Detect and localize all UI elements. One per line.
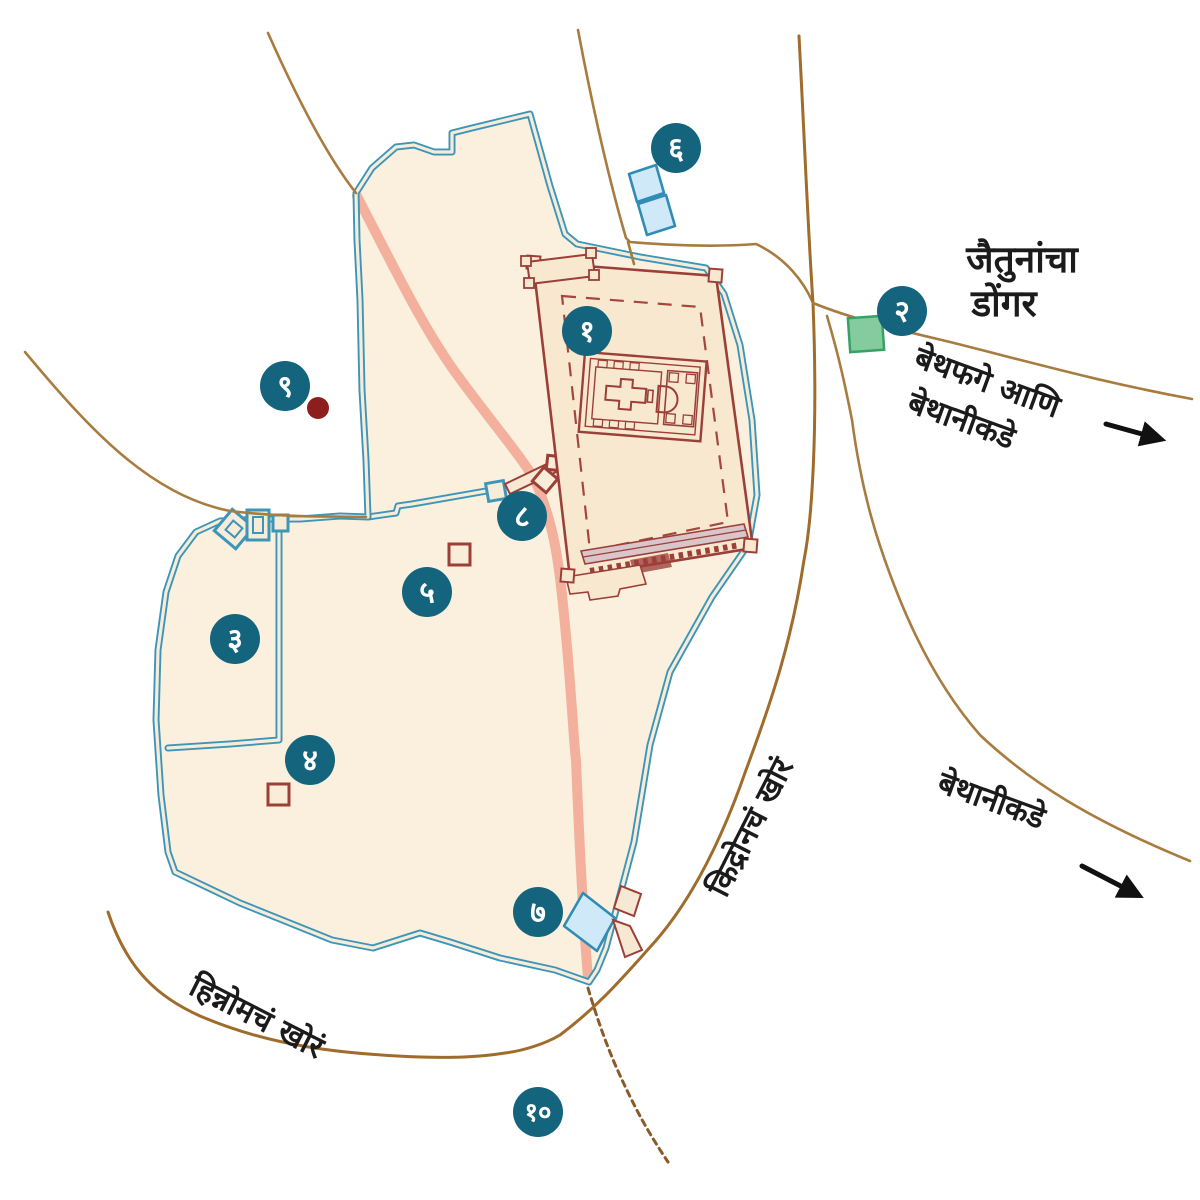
marker-2: २ [877,286,927,336]
map-page: जैतुनांचा डोंगर बेथफगे आणि बेथानीकडे बेथ… [0,0,1200,1200]
mount-of-olives-label-line1: जैतुनांचा [965,238,1079,283]
jerusalem-map: जैतुनांचा डोंगर बेथफगे आणि बेथानीकडे बेथ… [0,0,1200,1200]
marker-6: ६ [651,123,701,173]
marker-2-numeral: २ [894,295,910,330]
marker-8: ८ [497,491,547,541]
marker-3-numeral: ३ [227,623,243,658]
marker-7: ७ [513,887,563,937]
temple-sanctuary [579,352,707,441]
marker-9-numeral: ९ [277,370,293,405]
first-wall-tower [486,481,507,502]
marker-5: ५ [402,567,452,617]
marker-4-numeral: ४ [302,744,318,779]
marker-9: ९ [260,361,310,411]
mount-of-olives-label-line2: डोंगर [970,282,1038,325]
marker-3: ३ [210,614,260,664]
marker-1-numeral: १ [579,315,595,350]
marker-4: ४ [285,735,335,785]
garden-square [848,316,884,352]
marker-1: १ [562,306,612,356]
building-square-4 [268,784,289,805]
marker-5-numeral: ५ [419,576,435,611]
red-dot-site [307,397,329,419]
marker-10: १० [513,1087,563,1137]
marker-10-numeral: १० [524,1098,551,1128]
marker-7-numeral: ७ [530,896,546,931]
marker-6-numeral: ६ [668,132,684,167]
marker-8-numeral: ८ [514,500,530,535]
building-square-5 [449,544,470,565]
